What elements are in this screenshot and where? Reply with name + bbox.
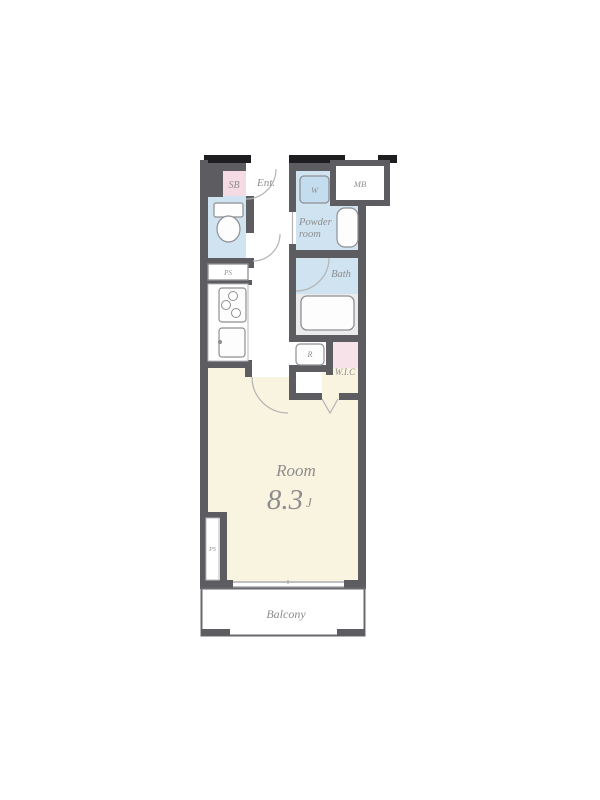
label-bath: Bath xyxy=(331,269,351,280)
label-powder-room-2: room xyxy=(299,229,321,240)
room-doorway-floor xyxy=(252,368,289,377)
toilet-door-arc xyxy=(253,234,280,261)
toilet-tank xyxy=(214,203,243,217)
sink-faucet xyxy=(218,340,221,343)
label-entrance: Ent. xyxy=(256,177,275,189)
wall-closet-bottom-left xyxy=(296,393,322,400)
bathtub-icon xyxy=(301,296,354,330)
label-washer: W xyxy=(311,185,319,195)
wall-kitchen-post xyxy=(245,360,252,377)
wall-toilet-right xyxy=(246,196,254,233)
sink-basin xyxy=(219,328,245,357)
wall-bath-left xyxy=(289,258,296,342)
service-pocket-floor xyxy=(296,372,322,393)
room-window xyxy=(233,580,344,587)
washbasin-icon xyxy=(337,208,358,247)
toilet-icon xyxy=(214,203,243,242)
wall-ps-niche-right xyxy=(220,512,227,582)
label-room-name: Room xyxy=(275,461,316,480)
stove-icon xyxy=(219,288,246,322)
label-room-size: 8.3 xyxy=(267,484,303,516)
label-refrigerator: R xyxy=(307,350,313,359)
wall-block-left-of-shoebox xyxy=(205,168,223,197)
stove-body xyxy=(219,288,246,322)
wall-bath-bottom xyxy=(289,335,366,342)
label-walk-in-closet: W.I.C xyxy=(335,367,356,377)
label-pipe-space-top: PS xyxy=(223,269,232,277)
wall-closet-bottom-right xyxy=(339,393,366,400)
balcony-corner-block-right xyxy=(337,629,365,636)
label-meter-box: MB xyxy=(353,179,366,189)
exterior-tick-left xyxy=(204,155,251,163)
floorplan-page: SB Ent. W MB Powder room PS Bath R W.I.C… xyxy=(0,0,600,800)
toilet-bowl xyxy=(217,216,240,242)
label-balcony: Balcony xyxy=(266,607,306,621)
kitchen-sink-icon xyxy=(218,328,245,357)
label-shoe-box: SB xyxy=(228,180,239,191)
balcony-corner-block-left xyxy=(201,629,230,636)
wall-powder-left-upper xyxy=(289,168,296,212)
floorplan-svg: SB Ent. W MB Powder room PS Bath R W.I.C… xyxy=(0,0,600,800)
label-pipe-space-bottom: PS xyxy=(208,547,216,553)
wall-powder-bottom xyxy=(289,250,366,258)
wall-top-middle xyxy=(289,163,336,171)
label-powder-room-1: Powder xyxy=(298,217,333,228)
wall-room-door-post xyxy=(289,365,296,400)
